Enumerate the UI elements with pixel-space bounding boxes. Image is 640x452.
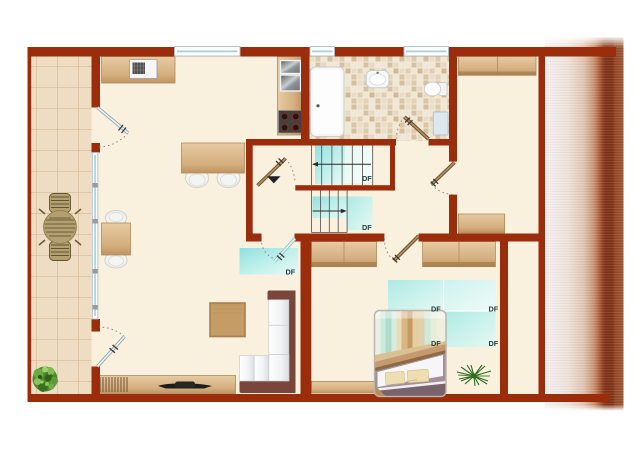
svg-text:DF: DF (489, 305, 499, 314)
svg-text:DF: DF (489, 339, 499, 348)
svg-text:DF: DF (431, 305, 441, 314)
svg-text:DF: DF (431, 339, 441, 348)
svg-text:DF: DF (362, 174, 372, 183)
svg-text:DF: DF (286, 268, 296, 277)
svg-text:DF: DF (362, 223, 372, 232)
